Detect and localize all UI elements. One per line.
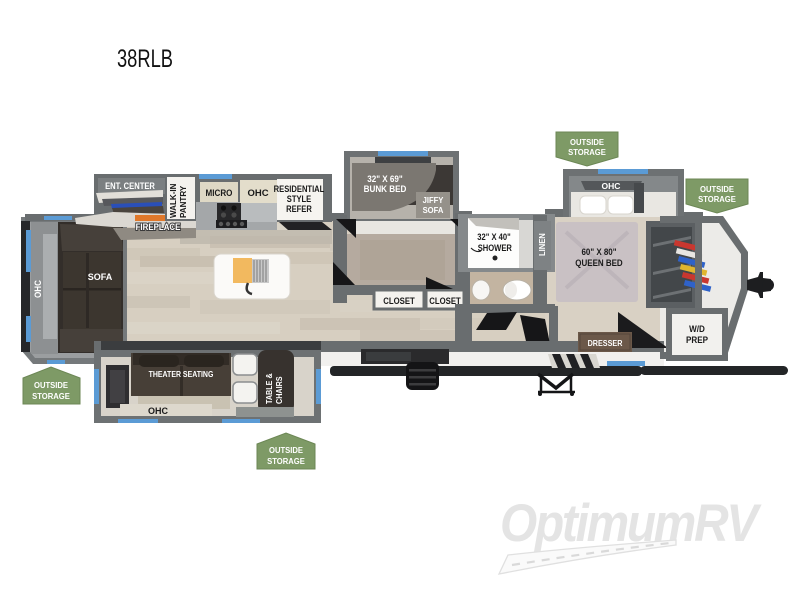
svg-text:FIREPLACE: FIREPLACE (136, 222, 181, 233)
svg-text:LINEN: LINEN (538, 233, 547, 256)
svg-text:OHC: OHC (247, 188, 268, 199)
svg-text:OUTSIDE: OUTSIDE (269, 446, 304, 455)
svg-text:OHC: OHC (602, 181, 621, 191)
svg-text:STORAGE: STORAGE (267, 457, 305, 466)
svg-text:PREP: PREP (686, 335, 708, 346)
svg-text:32" X 69": 32" X 69" (367, 174, 403, 185)
svg-text:MICRO: MICRO (206, 187, 233, 198)
svg-text:SHOWER: SHOWER (478, 242, 513, 253)
svg-text:CHAIRS: CHAIRS (275, 376, 284, 404)
svg-text:STORAGE: STORAGE (698, 195, 736, 204)
svg-text:PANTRY: PANTRY (178, 185, 188, 218)
svg-text:BUNK BED: BUNK BED (364, 184, 407, 195)
svg-text:STORAGE: STORAGE (32, 392, 70, 401)
svg-text:SOFA: SOFA (423, 206, 444, 215)
svg-text:CLOSET: CLOSET (383, 295, 415, 306)
svg-text:OHC: OHC (33, 280, 44, 298)
svg-text:THEATER SEATING: THEATER SEATING (149, 369, 214, 379)
svg-text:OUTSIDE: OUTSIDE (700, 185, 735, 194)
svg-text:W/D: W/D (689, 324, 705, 335)
svg-text:STORAGE: STORAGE (568, 148, 606, 157)
svg-text:WALK-IN: WALK-IN (168, 183, 178, 218)
svg-text:QUEEN BED: QUEEN BED (575, 257, 622, 268)
svg-text:REFER: REFER (286, 203, 312, 214)
svg-text:ENT. CENTER: ENT. CENTER (105, 180, 155, 191)
svg-text:OHC: OHC (148, 406, 169, 416)
svg-text:OUTSIDE: OUTSIDE (570, 138, 605, 147)
svg-text:TABLE &: TABLE & (265, 373, 274, 404)
svg-text:JIFFY: JIFFY (423, 196, 444, 205)
svg-text:60" X 80": 60" X 80" (581, 246, 616, 257)
svg-text:38RLB: 38RLB (117, 45, 173, 73)
svg-text:OUTSIDE: OUTSIDE (34, 381, 69, 390)
svg-text:DRESSER: DRESSER (588, 339, 623, 348)
svg-text:32" X 40": 32" X 40" (477, 231, 510, 242)
svg-text:SOFA: SOFA (88, 272, 113, 282)
